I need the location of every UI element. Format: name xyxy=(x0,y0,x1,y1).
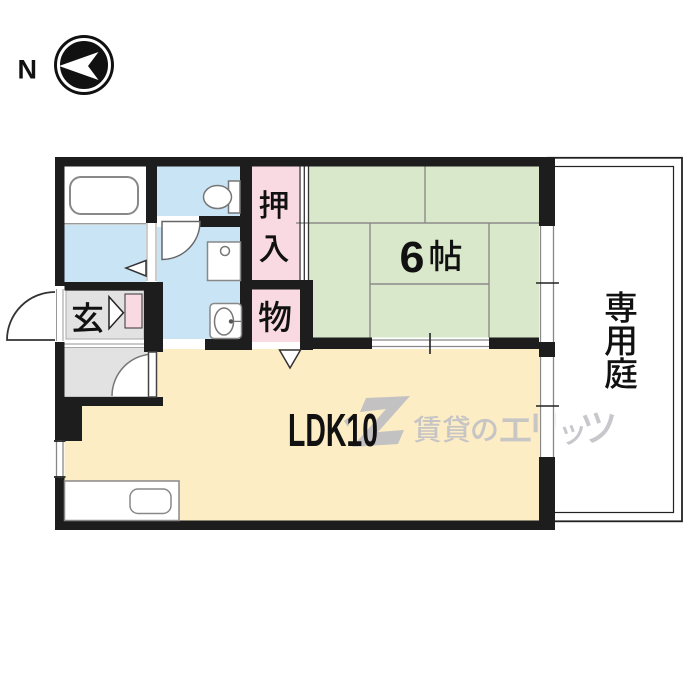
svg-text:N: N xyxy=(18,55,38,85)
svg-text:LDK10: LDK10 xyxy=(288,404,378,456)
svg-text:6: 6 xyxy=(400,233,425,282)
